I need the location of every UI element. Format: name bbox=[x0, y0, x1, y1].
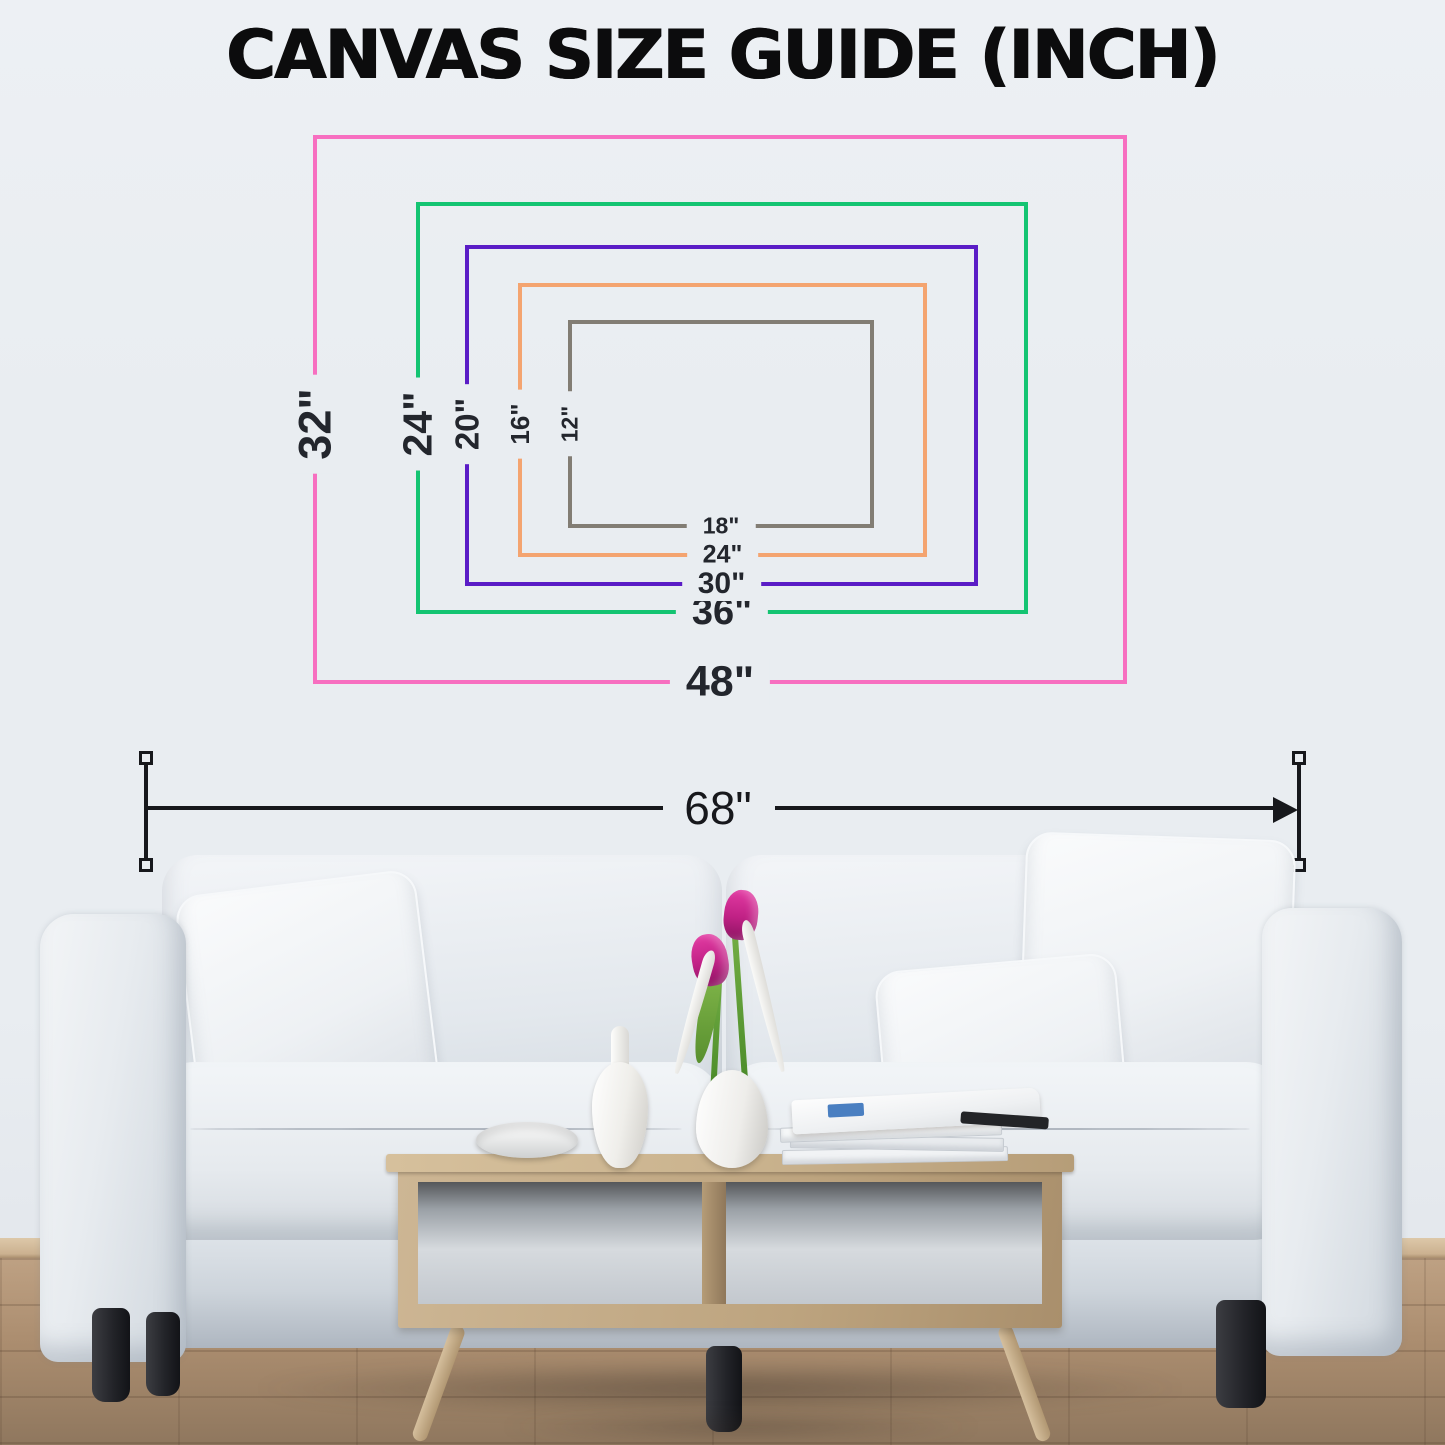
dimension-end-bar-left bbox=[144, 757, 148, 865]
bottle-vase-body bbox=[592, 1062, 648, 1168]
sofa-leg bbox=[1216, 1300, 1266, 1408]
tulip-vase-body bbox=[696, 1070, 768, 1168]
sofa-leg bbox=[146, 1312, 180, 1396]
width-label-30: 30" bbox=[682, 567, 762, 601]
height-label-12: 12" bbox=[555, 392, 586, 457]
wall-width-label: 68" bbox=[684, 781, 752, 835]
height-label-16: 16" bbox=[503, 389, 537, 458]
dimension-handle-icon bbox=[1292, 751, 1306, 765]
magazine-photo bbox=[828, 1103, 865, 1118]
sofa-armrest-right bbox=[1262, 908, 1402, 1356]
bowl bbox=[476, 1122, 578, 1158]
dimension-end-bar-right bbox=[1297, 757, 1301, 865]
vase-spike bbox=[739, 919, 788, 1073]
dimension-handle-icon bbox=[139, 858, 153, 872]
table-open-shelf bbox=[418, 1182, 1042, 1304]
width-label-48: 48" bbox=[670, 659, 770, 706]
arrow-right-icon bbox=[1273, 797, 1298, 823]
book-stack bbox=[780, 1086, 1050, 1168]
bottle-vase bbox=[592, 1026, 648, 1168]
table-box bbox=[398, 1168, 1062, 1328]
table-floor-shadow bbox=[396, 1410, 1086, 1444]
width-label-24: 24" bbox=[687, 541, 759, 570]
height-label-32: 32" bbox=[289, 374, 342, 473]
dimension-line-left-segment bbox=[148, 806, 663, 810]
sofa-leg bbox=[92, 1308, 130, 1402]
canvas-size-guide-image: CANVAS SIZE GUIDE (INCH) 32" 48" 24" 36"… bbox=[0, 0, 1445, 1445]
table-divider bbox=[702, 1182, 726, 1304]
tulip-vase-group bbox=[676, 888, 788, 1170]
open-magazine bbox=[791, 1088, 1040, 1135]
dimension-handle-icon bbox=[139, 751, 153, 765]
height-label-20: 20" bbox=[447, 384, 488, 464]
sofa-armrest-left bbox=[40, 914, 186, 1362]
canvas-rect-18x12: 12" 18" bbox=[568, 320, 874, 528]
height-label-24: 24" bbox=[394, 377, 443, 470]
width-label-18: 18" bbox=[687, 513, 756, 540]
dimension-line-right-segment bbox=[775, 806, 1275, 810]
